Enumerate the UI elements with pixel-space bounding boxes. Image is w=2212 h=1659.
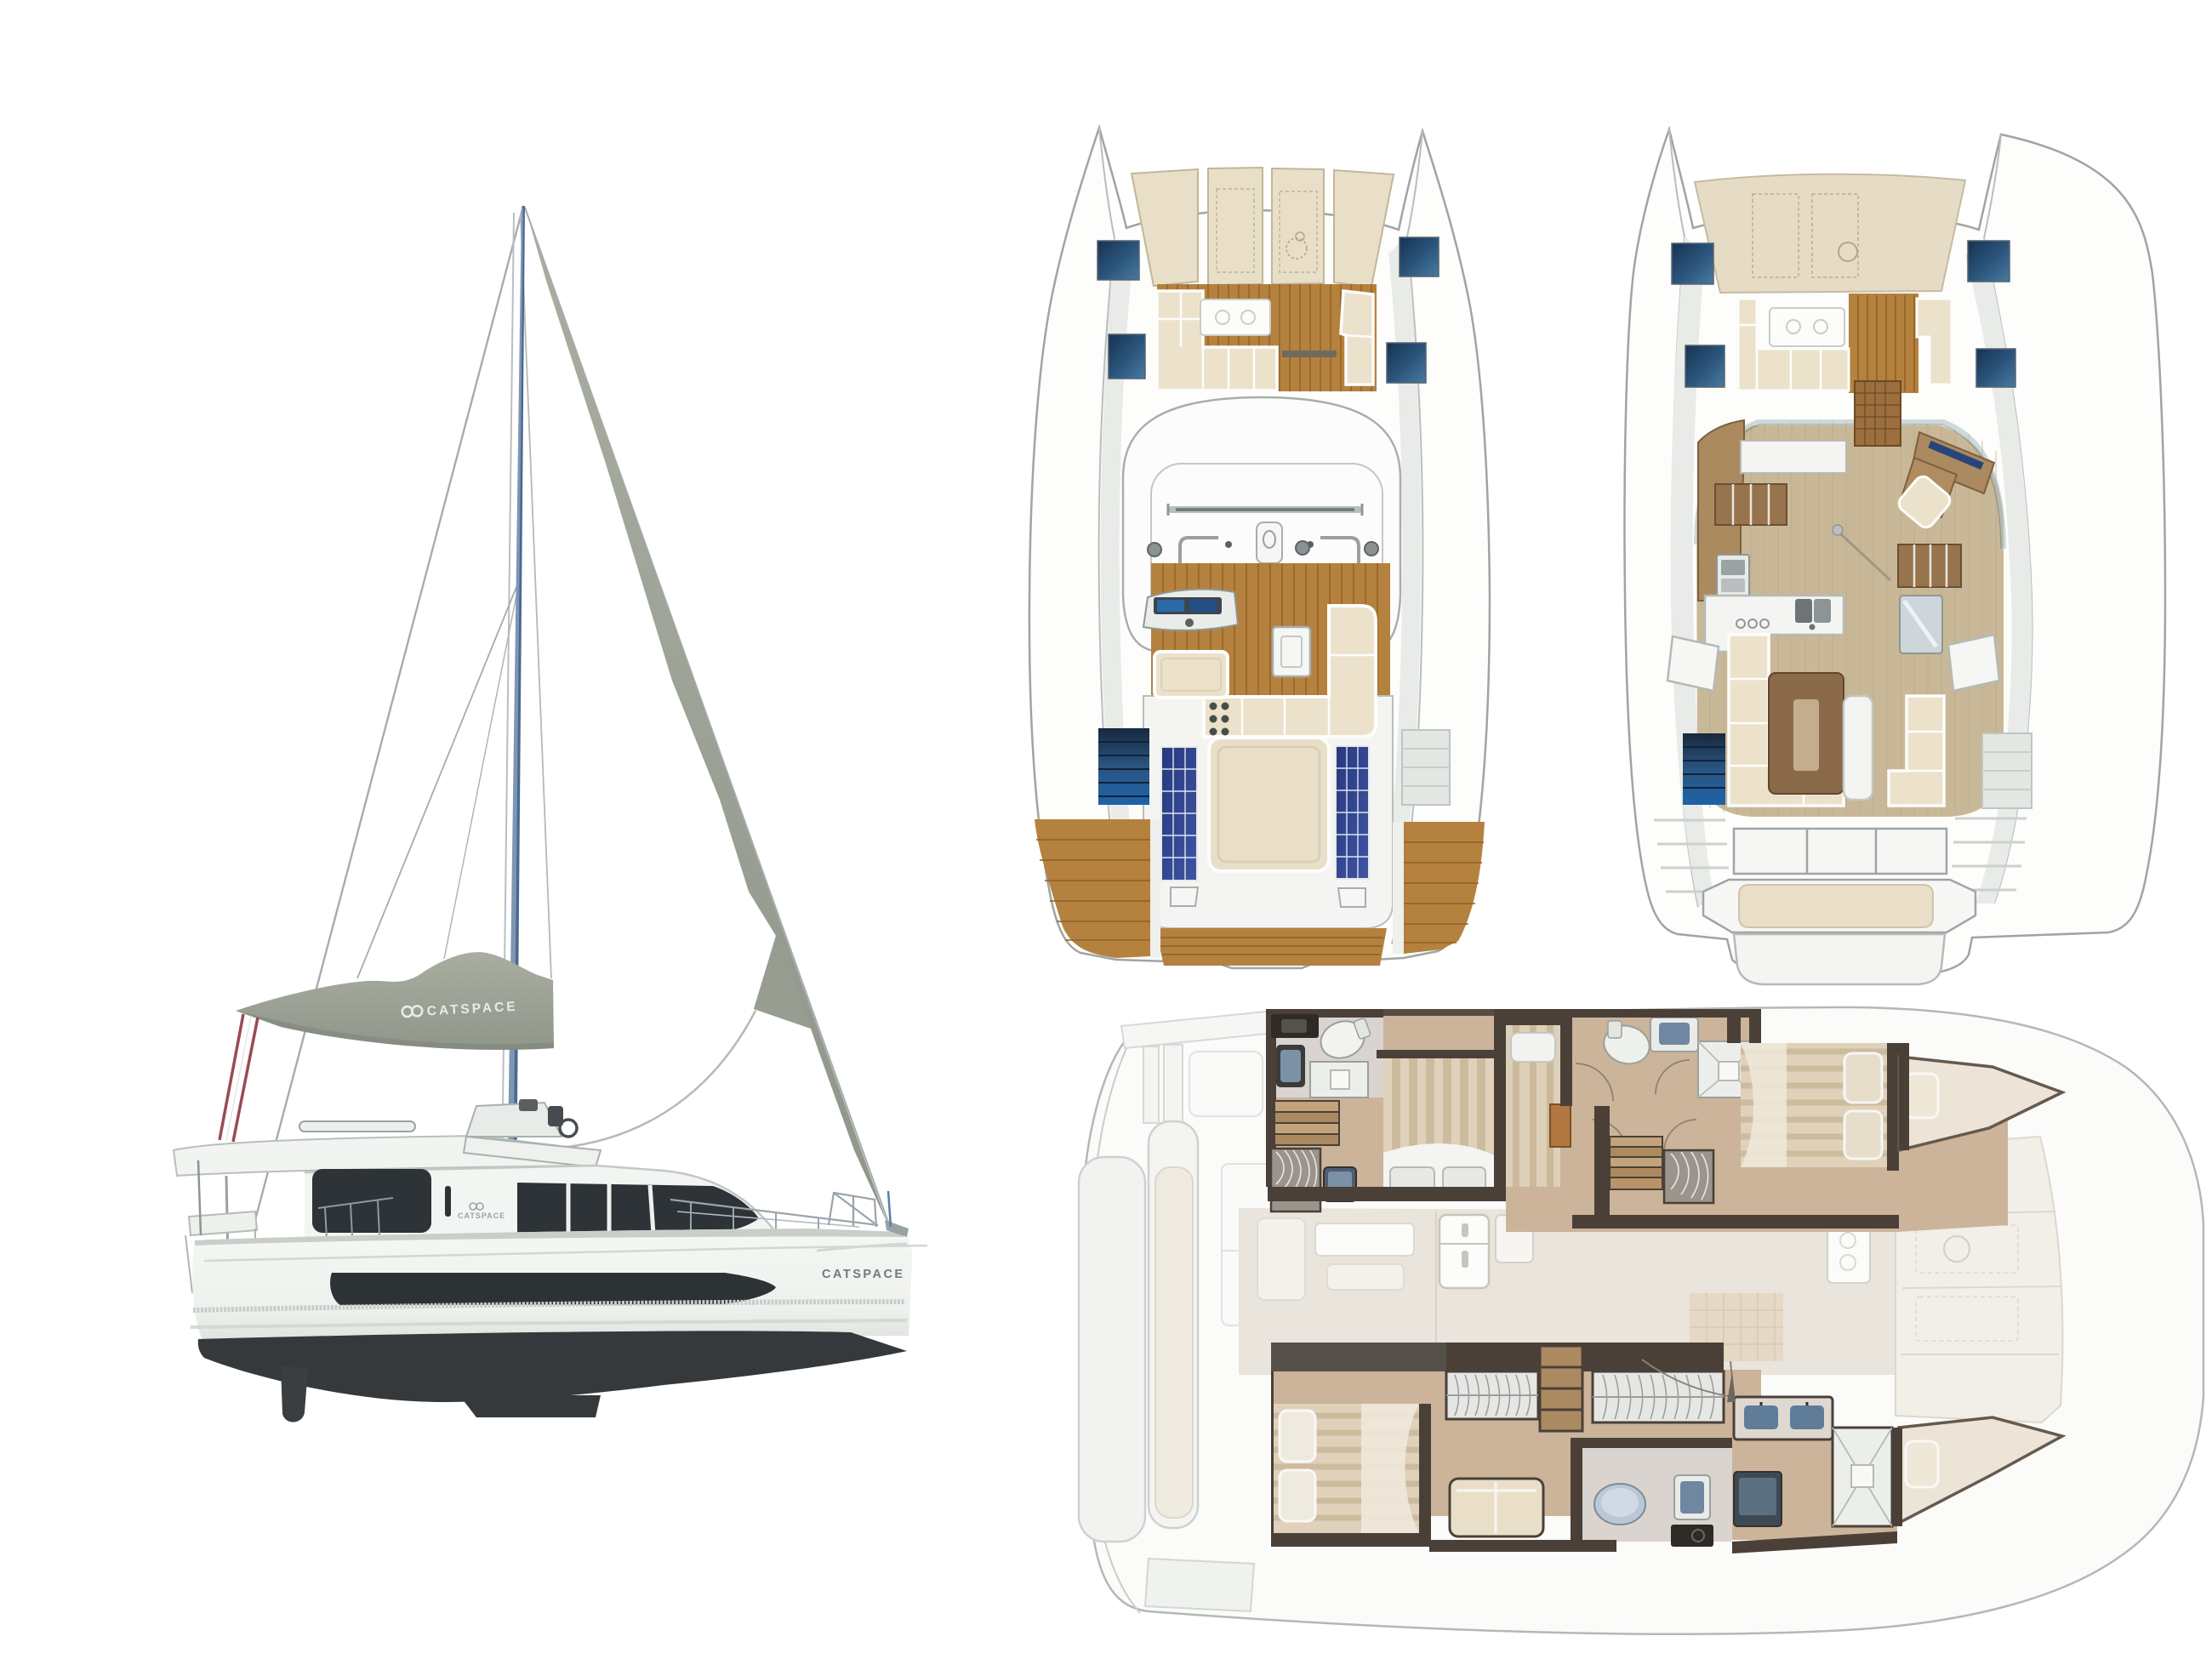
svg-text:CATSPACE: CATSPACE <box>822 1268 905 1281</box>
svg-text:CATSPACE: CATSPACE <box>458 1211 505 1220</box>
